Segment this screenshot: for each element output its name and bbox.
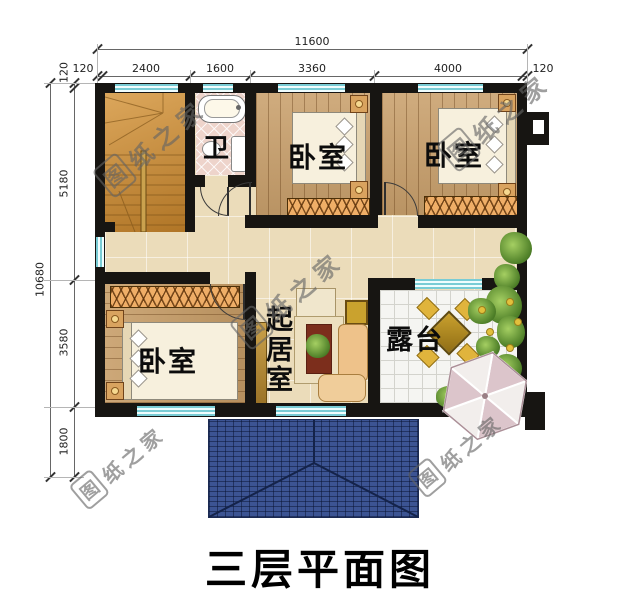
chaise: [318, 374, 366, 402]
page-title: 三层平面图: [0, 536, 640, 597]
wall-bumpout-notch: [533, 120, 544, 134]
window-stairs: [115, 84, 178, 92]
wall-bedrooms-bottom-b: [418, 215, 527, 228]
witness-line: [44, 407, 95, 408]
witness-line: [374, 70, 375, 83]
door-leaf-bedroom-mid: [249, 182, 251, 215]
fruit-dot: [514, 318, 522, 326]
fruit-dot: [478, 306, 486, 314]
wall-bedrooms-bottom-a: [245, 215, 378, 228]
nightstand: [350, 95, 368, 113]
label-bath: 卫: [203, 128, 231, 165]
hallway-plant: [500, 232, 532, 264]
dim-left-seg: 120: [58, 43, 71, 103]
dim-top-seg: 4000: [418, 62, 478, 75]
dim-top-overall: 11600: [282, 35, 342, 48]
witness-line: [190, 70, 191, 83]
roof-hip-lines: [209, 420, 418, 517]
floorplan-canvas: 卫 卧室 卧室 卧室 起居室 露台 11600 120 2400 1600 33…: [0, 0, 640, 611]
fruit-dot: [506, 298, 514, 306]
window-terrace: [415, 279, 482, 289]
window-bedroom-mid: [278, 84, 345, 92]
wall-bedroom-bottom-top: [95, 272, 210, 284]
door-leaf-bedroom-right: [384, 182, 386, 215]
witness-line: [44, 83, 95, 84]
potted-plant: [306, 334, 330, 358]
wall-living-terrace: [368, 278, 380, 417]
wall-between-bedrooms: [370, 93, 382, 215]
roof: [208, 419, 419, 518]
label-bedroom-mid: 卧室: [288, 136, 348, 176]
window-bedroom-right: [418, 84, 483, 92]
wall-bath-bedroom: [245, 93, 256, 182]
wall-bath-bottom-a: [185, 175, 205, 187]
witness-line: [97, 44, 98, 83]
window-left: [96, 237, 104, 267]
witness-line: [44, 280, 95, 281]
dim-top-seg: 1600: [190, 62, 250, 75]
tv-frame: [345, 300, 368, 325]
label-bedroom-bottom: 卧室: [138, 340, 198, 380]
dim-top-seg: 2400: [116, 62, 176, 75]
dim-left-seg: 5180: [58, 154, 71, 214]
dim-top-seg: 3360: [282, 62, 342, 75]
dim-line-top-overall: [97, 49, 527, 50]
dim-left-seg: 3580: [58, 313, 71, 373]
window-bath: [203, 84, 233, 92]
dim-line-top-segments: [97, 76, 527, 77]
fruit-dot: [486, 328, 494, 336]
window-living: [276, 406, 346, 416]
witness-line: [250, 70, 251, 83]
nightstand: [106, 382, 124, 400]
dim-left-seg: 1800: [58, 412, 71, 472]
label-terrace: 露台: [386, 318, 444, 357]
wall-stairs-stub: [95, 222, 115, 232]
nightstand: [106, 310, 124, 328]
watermark-text: 纸之家: [95, 418, 171, 488]
watermark: 图 纸之家: [68, 417, 171, 511]
wardrobe-right: [424, 196, 519, 216]
bed-mid-headboard: [356, 112, 366, 184]
nightstand: [350, 181, 368, 199]
window-bedroom-bottom: [137, 406, 215, 416]
bathtub-faucet: [236, 105, 241, 110]
